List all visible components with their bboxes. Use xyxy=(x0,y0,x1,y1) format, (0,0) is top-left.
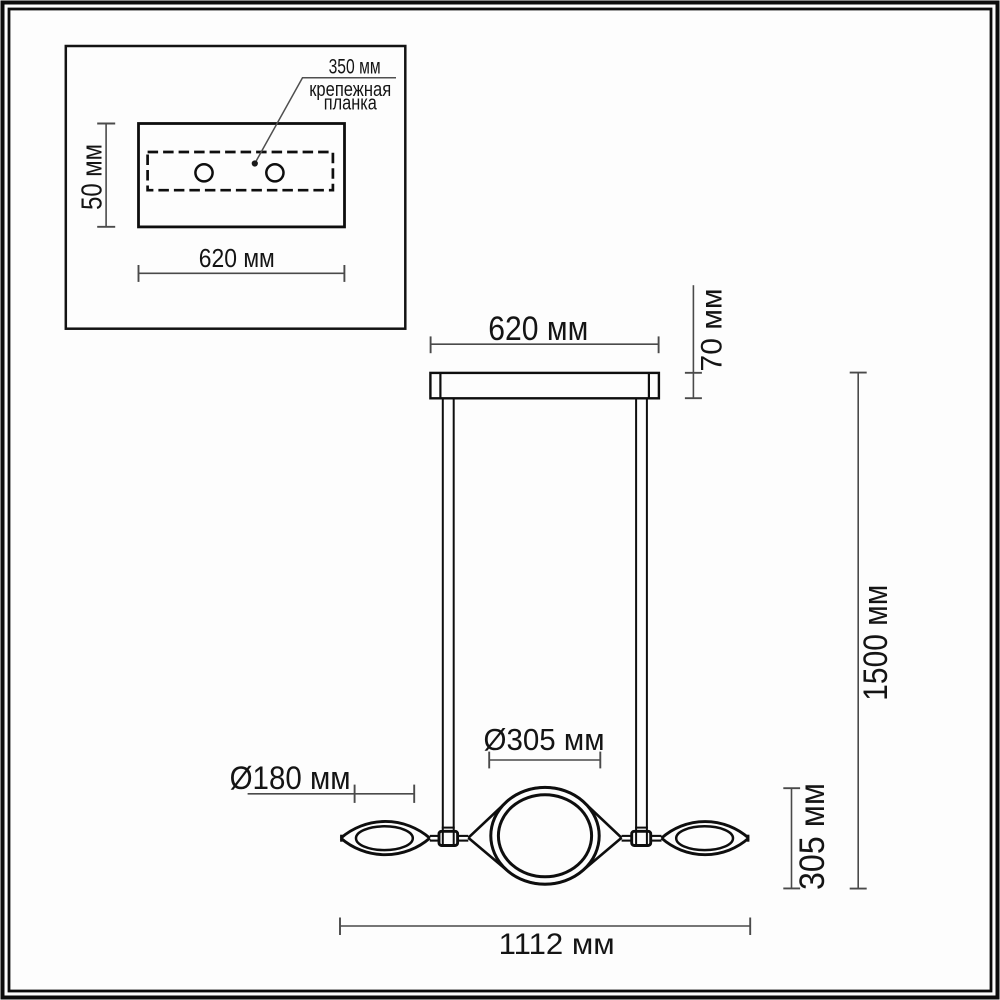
svg-text:305 мм: 305 мм xyxy=(793,783,832,890)
svg-text:350 мм: 350 мм xyxy=(329,56,381,79)
svg-text:620 мм: 620 мм xyxy=(488,310,588,348)
svg-text:620 мм: 620 мм xyxy=(199,245,275,273)
svg-text:Ø305 мм: Ø305 мм xyxy=(484,722,605,757)
svg-text:1500 мм: 1500 мм xyxy=(857,585,895,701)
svg-text:1112 мм: 1112 мм xyxy=(499,928,615,961)
svg-text:планка: планка xyxy=(324,93,378,115)
svg-text:Ø180 мм: Ø180 мм xyxy=(230,760,351,796)
svg-text:50 мм: 50 мм xyxy=(77,144,109,210)
svg-text:70 мм: 70 мм xyxy=(695,289,728,372)
